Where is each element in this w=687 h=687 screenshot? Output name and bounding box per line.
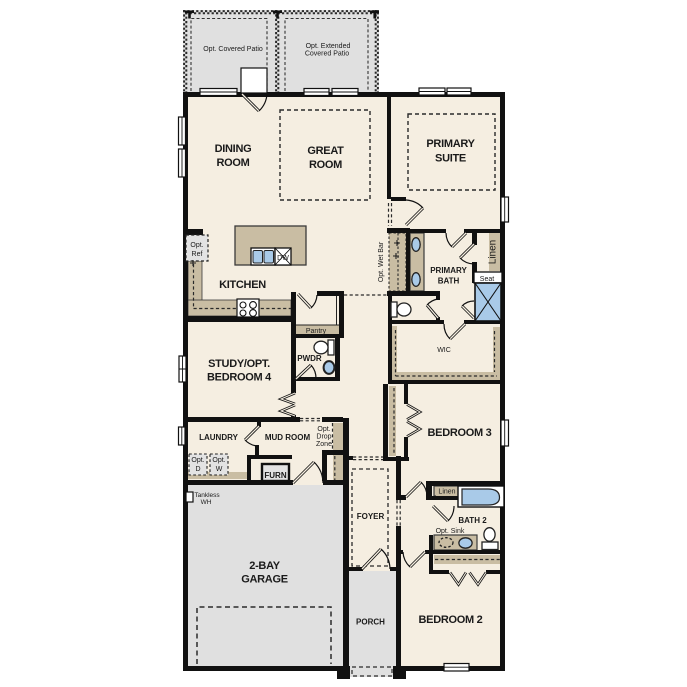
svg-text:W: W bbox=[216, 466, 223, 473]
svg-text:STUDY/OPT.: STUDY/OPT. bbox=[208, 358, 270, 370]
svg-text:PRIMARY: PRIMARY bbox=[430, 266, 467, 275]
svg-text:WIC: WIC bbox=[437, 347, 451, 354]
svg-text:Opt.: Opt. bbox=[191, 457, 204, 464]
svg-text:MUD ROOM: MUD ROOM bbox=[265, 433, 311, 442]
svg-text:LAUNDRY: LAUNDRY bbox=[199, 433, 238, 442]
svg-text:SUITE: SUITE bbox=[435, 153, 466, 165]
svg-text:BATH: BATH bbox=[438, 277, 460, 286]
svg-text:2-BAY: 2-BAY bbox=[249, 560, 280, 572]
svg-text:BEDROOM 4: BEDROOM 4 bbox=[207, 372, 272, 384]
svg-text:D: D bbox=[195, 466, 200, 473]
svg-text:DINING: DINING bbox=[215, 143, 252, 155]
svg-text:PWDR: PWDR bbox=[297, 354, 322, 363]
svg-text:Tankless: Tankless bbox=[194, 492, 220, 499]
svg-text:Opt.: Opt. bbox=[212, 457, 225, 464]
svg-text:ROOM: ROOM bbox=[216, 157, 249, 169]
svg-text:Drop: Drop bbox=[316, 434, 331, 441]
svg-text:Seat: Seat bbox=[480, 276, 494, 283]
svg-text:PRIMARY: PRIMARY bbox=[426, 138, 475, 150]
svg-text:Opt.: Opt. bbox=[190, 242, 203, 249]
svg-text:FURN: FURN bbox=[264, 471, 286, 480]
svg-text:Pantry: Pantry bbox=[306, 328, 327, 335]
svg-text:BEDROOM 2: BEDROOM 2 bbox=[419, 614, 483, 626]
svg-text:Opt. Covered Patio: Opt. Covered Patio bbox=[203, 46, 263, 53]
svg-text:Opt. Extended: Opt. Extended bbox=[306, 43, 351, 50]
svg-text:Opt. Sink: Opt. Sink bbox=[436, 528, 465, 535]
svg-text:Covered Patio: Covered Patio bbox=[305, 51, 349, 58]
svg-text:Linen: Linen bbox=[438, 489, 455, 496]
svg-text:BATH 2: BATH 2 bbox=[458, 516, 487, 525]
svg-text:KITCHEN: KITCHEN bbox=[219, 279, 266, 291]
svg-text:Ref: Ref bbox=[192, 251, 203, 258]
svg-text:Opt. Wet Bar: Opt. Wet Bar bbox=[378, 241, 385, 282]
svg-text:Linen: Linen bbox=[488, 240, 499, 264]
svg-text:GREAT: GREAT bbox=[307, 145, 344, 157]
svg-text:GARAGE: GARAGE bbox=[241, 574, 287, 586]
svg-text:DW: DW bbox=[277, 255, 289, 262]
svg-text:WH: WH bbox=[201, 499, 212, 506]
svg-text:PORCH: PORCH bbox=[356, 618, 385, 627]
svg-text:BEDROOM 3: BEDROOM 3 bbox=[428, 427, 492, 439]
svg-text:Opt.: Opt. bbox=[317, 426, 330, 433]
svg-text:Zone: Zone bbox=[316, 441, 332, 448]
svg-text:ROOM: ROOM bbox=[309, 159, 342, 171]
svg-text:FOYER: FOYER bbox=[357, 512, 385, 521]
